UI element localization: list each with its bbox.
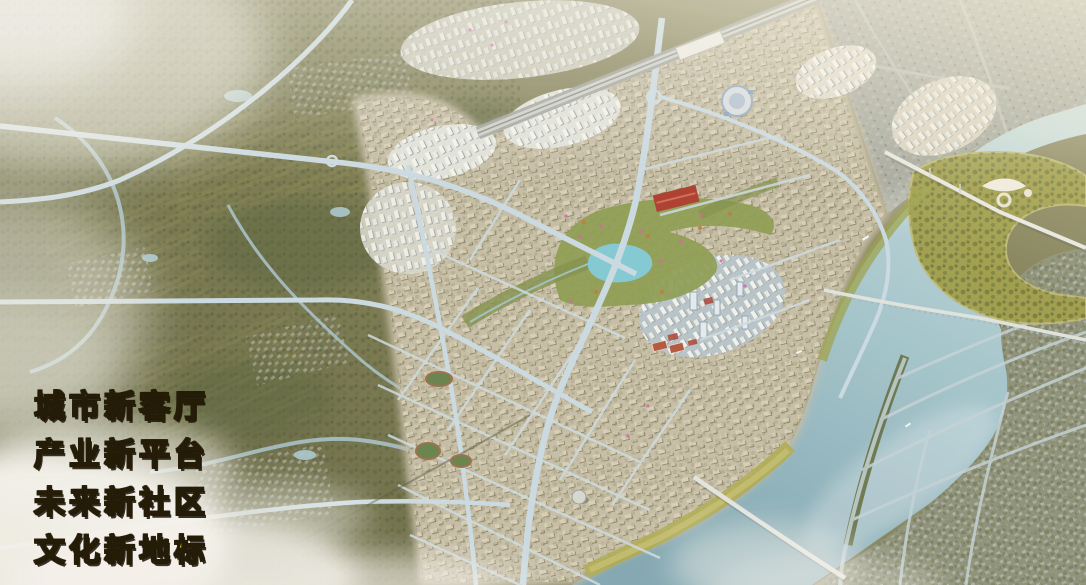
slogan-line-2: 产业新平台: [34, 431, 209, 479]
slogan-line-4: 文化新地标: [34, 527, 209, 575]
slogan-line-3: 未来新社区: [34, 479, 209, 527]
screenshot-root: 城市新客厅 产业新平台 未来新社区 文化新地标: [0, 0, 1086, 585]
slogan-line-1: 城市新客厅: [34, 383, 209, 431]
slogan-overlay: 城市新客厅 产业新平台 未来新社区 文化新地标: [34, 383, 209, 575]
